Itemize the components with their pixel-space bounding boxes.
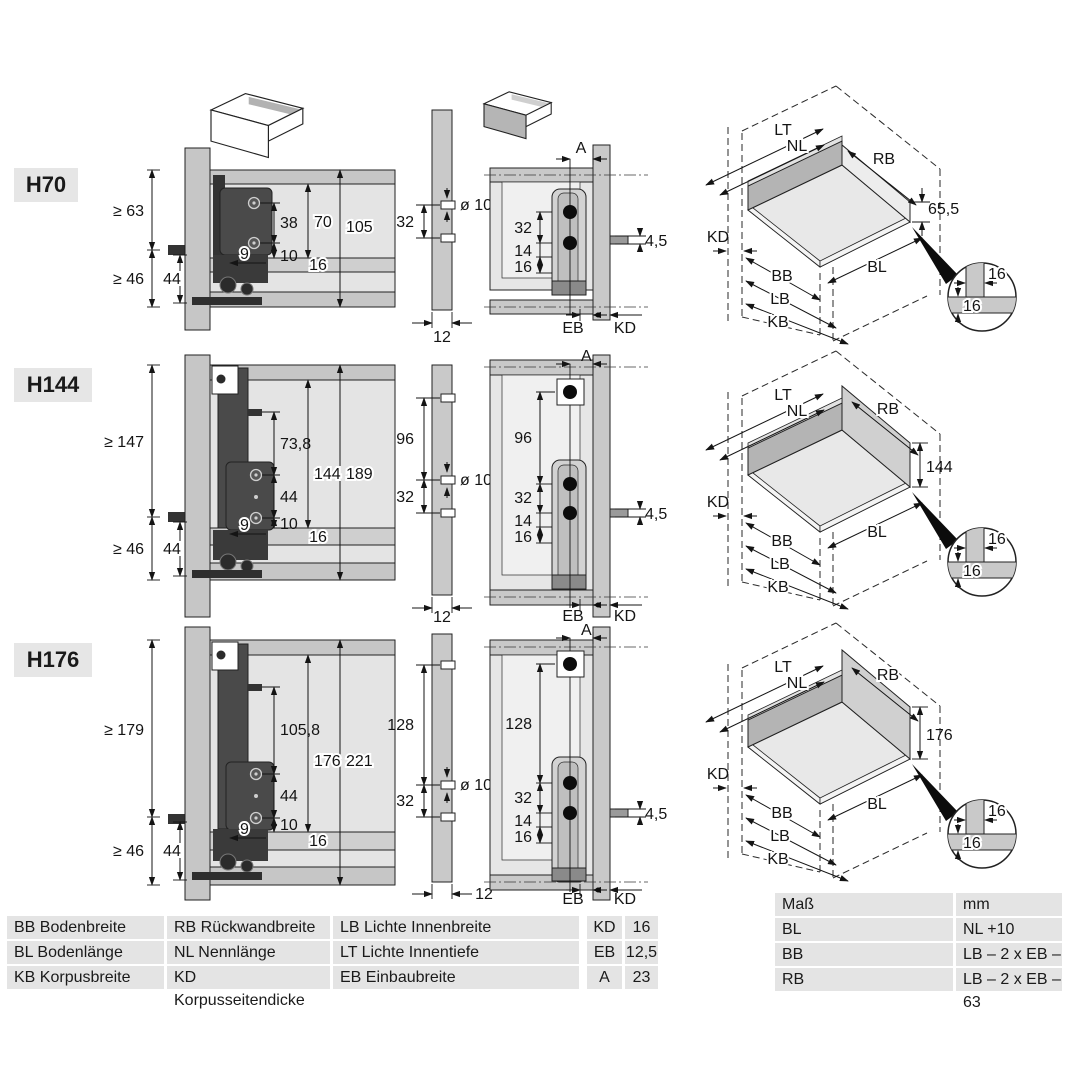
dim-label: 73,8 bbox=[280, 436, 311, 453]
h144-drill-view: 96 32 ø 10 12 bbox=[396, 365, 492, 622]
legend-cell: NL Nennlänge bbox=[167, 941, 330, 964]
dim-label: 4,5 bbox=[645, 506, 667, 523]
legend-cell: BL Bodenlänge bbox=[7, 941, 164, 964]
legend-cell: EB Einbaubreite bbox=[333, 966, 579, 989]
legend-cell: LT Lichte Innentiefe bbox=[333, 941, 579, 964]
dim-label: 4,5 bbox=[645, 233, 667, 250]
value-key: EB bbox=[587, 941, 622, 964]
dim-label: 221 bbox=[346, 753, 373, 770]
dim-label: 14 bbox=[514, 813, 532, 830]
dim-label: 10 bbox=[280, 817, 298, 834]
formula-value: LB – 2 x EB – 51,5 bbox=[956, 943, 1062, 966]
dim-label: BB bbox=[771, 268, 792, 285]
dim-label: 32 bbox=[396, 214, 414, 231]
formula-header: mm bbox=[956, 893, 1062, 916]
dim-label: 44 bbox=[163, 541, 181, 558]
table-row: BB Bodenbreite RB Rückwandbreite LB Lich… bbox=[7, 916, 582, 939]
dim-label: LT bbox=[774, 659, 792, 676]
dim-label: 16 bbox=[963, 298, 981, 315]
dim-label: 189 bbox=[346, 466, 373, 483]
dim-label: 44 bbox=[280, 489, 298, 506]
legend-table: BB Bodenbreite RB Rückwandbreite LB Lich… bbox=[7, 916, 582, 991]
dim-label: 144 bbox=[314, 466, 341, 483]
dim-label: 96 bbox=[396, 431, 414, 448]
dim-label: 16 bbox=[514, 829, 532, 846]
dim-label: 32 bbox=[396, 489, 414, 506]
formula-key: BB bbox=[775, 943, 953, 966]
dim-label: KB bbox=[767, 314, 788, 331]
dim-label: 16 bbox=[309, 257, 327, 274]
dim-label: 44 bbox=[163, 843, 181, 860]
dim-label: 128 bbox=[505, 716, 532, 733]
value-key: A bbox=[587, 966, 622, 989]
dim-label: 16 bbox=[514, 529, 532, 546]
h70-iso-view: LT NL RB KD BB LB KB BL 65,5 bbox=[706, 86, 1018, 344]
h144-row-drawing: ≥ 147 ≥ 46 44 73,8 44 10 9 144 189 16 bbox=[0, 350, 1080, 622]
table-row: BB LB – 2 x EB – 51,5 bbox=[775, 943, 1065, 966]
dim-label: 16 bbox=[514, 259, 532, 276]
dim-label: RB bbox=[877, 667, 899, 684]
legend-cell: KD Korpusseitendicke bbox=[167, 966, 330, 989]
dim-label: 12 bbox=[433, 609, 451, 622]
table-row: EB 12,5 bbox=[587, 941, 661, 964]
value-cell: 12,5 bbox=[625, 941, 658, 964]
dim-label: LB bbox=[770, 556, 790, 573]
formula-header: Maß bbox=[775, 893, 953, 916]
legend-cell: BB Bodenbreite bbox=[7, 916, 164, 939]
value-cell: 16 bbox=[625, 916, 658, 939]
dim-label: 9 bbox=[240, 821, 249, 838]
dim-label: ≥ 147 bbox=[104, 434, 144, 451]
dim-label: KD bbox=[614, 891, 636, 905]
dim-label: 9 bbox=[240, 517, 249, 534]
h176-row-drawing: ≥ 179 ≥ 46 44 105,8 44 10 9 176 221 16 bbox=[0, 622, 1080, 905]
formula-key: RB bbox=[775, 968, 953, 991]
dim-label: KD bbox=[707, 229, 729, 246]
dim-label: 16 bbox=[988, 266, 1006, 283]
table-row: BL Bodenlänge NL Nennlänge LT Lichte Inn… bbox=[7, 941, 582, 964]
page: H70 H144 H176 bbox=[0, 0, 1080, 1080]
dim-label: A bbox=[581, 622, 592, 639]
dim-label: 32 bbox=[514, 790, 532, 807]
dim-label: BL bbox=[867, 796, 887, 813]
h144-side-view: ≥ 147 ≥ 46 44 73,8 44 10 9 144 189 16 bbox=[104, 355, 395, 617]
dim-label: 105,8 bbox=[280, 722, 320, 739]
h176-drill-view: 128 32 ø 10 12 bbox=[387, 634, 493, 903]
dim-label: 44 bbox=[163, 271, 181, 288]
h176-side-view: ≥ 179 ≥ 46 44 105,8 44 10 9 176 221 16 bbox=[104, 627, 395, 900]
table-row: A 23 bbox=[587, 966, 661, 989]
dim-label: 14 bbox=[514, 243, 532, 260]
dim-label: LB bbox=[770, 828, 790, 845]
dim-label: RB bbox=[873, 151, 895, 168]
dim-label: 16 bbox=[963, 563, 981, 580]
table-header-row: Maß mm bbox=[775, 893, 1065, 916]
dim-label: 9 bbox=[240, 246, 249, 263]
detail-circle: 16 16 bbox=[912, 227, 1018, 331]
h144-iso-view: LT NL RB KD BB LB KB BL 144 bbox=[706, 351, 1018, 609]
table-row: RB LB – 2 x EB – 63 bbox=[775, 968, 1065, 991]
dim-label: KD bbox=[707, 766, 729, 783]
dim-label: ≥ 63 bbox=[113, 203, 144, 220]
h144-rear-view: A 96 32 14 16 4,5 EB KD bbox=[484, 350, 667, 622]
dim-label: 12 bbox=[433, 329, 451, 345]
legend-cell: KB Korpusbreite bbox=[7, 966, 164, 989]
dim-label: EB bbox=[562, 891, 583, 905]
dim-label: LT bbox=[774, 387, 792, 404]
table-row: KD 16 bbox=[587, 916, 661, 939]
dim-label: 32 bbox=[514, 220, 532, 237]
dim-label: 44 bbox=[280, 788, 298, 805]
back-height-label: 144 bbox=[926, 459, 953, 476]
dim-label: BL bbox=[867, 259, 887, 276]
dim-label: KB bbox=[767, 851, 788, 868]
dim-label: 16 bbox=[309, 833, 327, 850]
dim-label: EB bbox=[562, 320, 583, 337]
dim-label: BL bbox=[867, 524, 887, 541]
dim-label: ≥ 46 bbox=[113, 843, 144, 860]
drawer-open-icon bbox=[211, 94, 303, 158]
h176-iso-view: LT NL RB KD BB LB KB BL 176 bbox=[706, 623, 1018, 881]
dim-label: KB bbox=[767, 579, 788, 596]
drawer-gray-front-icon bbox=[484, 92, 551, 139]
dim-label: A bbox=[581, 350, 592, 365]
formula-value: NL +10 bbox=[956, 918, 1062, 941]
dim-label: 176 bbox=[314, 753, 341, 770]
dim-label: NL bbox=[787, 403, 808, 420]
dim-label: KD bbox=[614, 320, 636, 337]
dim-label: ≥ 46 bbox=[113, 271, 144, 288]
dim-label: 10 bbox=[280, 248, 298, 265]
dim-label: 105 bbox=[346, 219, 373, 236]
dim-label: 32 bbox=[396, 793, 414, 810]
dim-label: 14 bbox=[514, 513, 532, 530]
h70-rear-view: A 32 14 16 4,5 EB KD bbox=[484, 140, 667, 337]
dim-label: 38 bbox=[280, 215, 298, 232]
dim-label: ø 10 bbox=[460, 472, 492, 489]
dim-label: KD bbox=[707, 494, 729, 511]
formula-table: Maß mm BL NL +10 BB LB – 2 x EB – 51,5 R… bbox=[775, 893, 1065, 993]
dim-label: 16 bbox=[963, 835, 981, 852]
dim-label: LT bbox=[774, 122, 792, 139]
h70-row-drawing: ≥ 63 ≥ 46 44 38 10 9 70 105 16 32 bbox=[0, 85, 1080, 345]
dim-label: NL bbox=[787, 675, 808, 692]
dim-label: KD bbox=[614, 608, 636, 622]
h176-rear-view: A 128 32 14 16 4,5 EB KD bbox=[484, 622, 667, 905]
value-cell: 23 bbox=[625, 966, 658, 989]
legend-cell: RB Rückwandbreite bbox=[167, 916, 330, 939]
dim-label: 16 bbox=[309, 529, 327, 546]
dim-label: ≥ 46 bbox=[113, 541, 144, 558]
legend-cell: LB Lichte Innenbreite bbox=[333, 916, 579, 939]
dim-label: 16 bbox=[988, 803, 1006, 820]
back-height-label: 65,5 bbox=[928, 201, 959, 218]
dim-label: 10 bbox=[280, 516, 298, 533]
dim-label: RB bbox=[877, 401, 899, 418]
h70-side-view: ≥ 63 ≥ 46 44 38 10 9 70 105 16 bbox=[113, 148, 395, 330]
formula-value: LB – 2 x EB – 63 bbox=[956, 968, 1062, 991]
dim-label: ≥ 179 bbox=[104, 722, 144, 739]
detail-circle: 16 16 bbox=[912, 492, 1018, 596]
dim-label: ø 10 bbox=[460, 197, 492, 214]
dim-label: 32 bbox=[514, 490, 532, 507]
dim-label: LB bbox=[770, 291, 790, 308]
dim-label: 70 bbox=[314, 214, 332, 231]
table-row: KB Korpusbreite KD Korpusseitendicke EB … bbox=[7, 966, 582, 989]
dim-label: BB bbox=[771, 805, 792, 822]
dim-label: 128 bbox=[387, 717, 414, 734]
values-table: KD 16 EB 12,5 A 23 bbox=[587, 916, 661, 991]
table-row: BL NL +10 bbox=[775, 918, 1065, 941]
dim-label: 96 bbox=[514, 430, 532, 447]
dim-label: 16 bbox=[988, 531, 1006, 548]
h70-drill-view: 32 ø 10 12 bbox=[396, 110, 492, 345]
dim-label: EB bbox=[562, 608, 583, 622]
formula-key: BL bbox=[775, 918, 953, 941]
dim-label: NL bbox=[787, 138, 808, 155]
dim-label: ø 10 bbox=[460, 777, 492, 794]
dim-label: 4,5 bbox=[645, 806, 667, 823]
value-key: KD bbox=[587, 916, 622, 939]
dim-label: BB bbox=[771, 533, 792, 550]
back-height-label: 176 bbox=[926, 727, 953, 744]
dim-label: A bbox=[576, 140, 587, 157]
detail-circle: 16 16 bbox=[912, 764, 1018, 868]
